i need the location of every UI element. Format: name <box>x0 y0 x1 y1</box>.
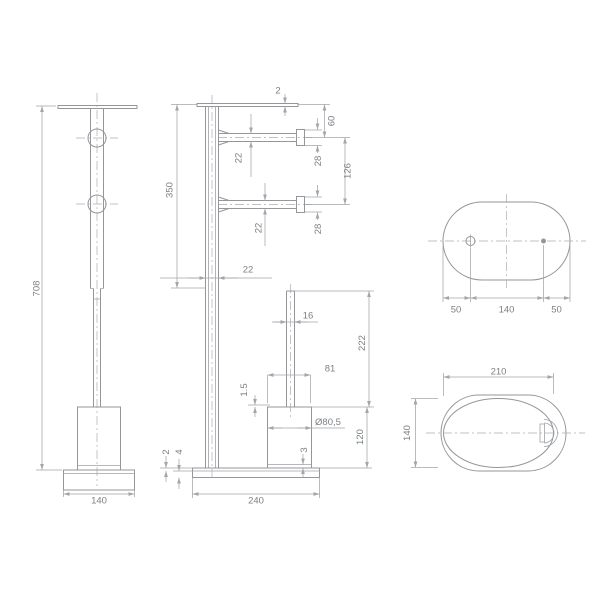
front-height-dim-label: 708 <box>32 281 43 297</box>
side-plate-dim-label: 2 <box>275 86 280 97</box>
side-arm-spacing-dim-label: 126 <box>343 163 354 179</box>
top-left-dim-label: 50 <box>451 305 462 316</box>
side-arm-offset-dim-label: 60 <box>327 116 338 127</box>
side-cup-gap-label: 3 <box>299 447 310 452</box>
top-center-dim-label: 140 <box>499 305 515 316</box>
side-arm2-dia-label: 22 <box>254 223 265 234</box>
side-view: 2 60 28 126 28 22 22 22 350 <box>160 86 374 507</box>
top-view: 50 140 50 <box>428 194 586 316</box>
side-handle-dim-label: 16 <box>303 311 314 322</box>
side-base-height-label: 4 <box>174 449 185 454</box>
side-top-plate <box>197 104 298 107</box>
front-base <box>64 470 135 490</box>
side-arm1-dia-label: 22 <box>234 153 245 164</box>
side-handle-len-label: 222 <box>357 335 368 351</box>
front-base-dim-label: 140 <box>91 496 107 507</box>
side-upper-dim-label: 350 <box>165 182 176 198</box>
side-cup-dia-label: Ø80,5 <box>315 417 341 428</box>
front-view: 708 140 <box>32 93 138 507</box>
plan-depth-dim-label: 140 <box>402 425 413 441</box>
plan-view: 210 140 <box>402 367 585 472</box>
plan-length-dim-label: 210 <box>491 367 507 378</box>
side-cup <box>268 407 312 468</box>
side-upper-ext-lines <box>171 105 206 289</box>
side-base <box>193 468 320 478</box>
side-base-len-label: 240 <box>248 496 264 507</box>
side-flange2-dim-label: 28 <box>313 224 324 235</box>
front-cup <box>78 407 121 470</box>
side-right-ext-lines <box>298 105 350 205</box>
top-handle-point <box>541 239 546 244</box>
side-cup-height-label: 120 <box>355 429 366 445</box>
technical-drawing: 708 140 2 60 28 <box>0 0 600 600</box>
side-flange1-dim-label: 28 <box>313 156 324 167</box>
top-right-dim-label: 50 <box>551 305 562 316</box>
side-base-ext-lines <box>160 468 193 471</box>
drawing-sheet: 708 140 2 60 28 <box>0 0 600 600</box>
front-top-plate <box>58 106 137 109</box>
side-base-plate-label: 2 <box>161 449 172 454</box>
side-rim-ext-lines <box>268 375 311 403</box>
side-rim-lip-label: 1.5 <box>239 383 250 396</box>
side-arm-centerlines <box>218 138 315 205</box>
side-rim-dim-label: 81 <box>325 364 336 375</box>
side-pole-width-label: 22 <box>243 265 254 276</box>
